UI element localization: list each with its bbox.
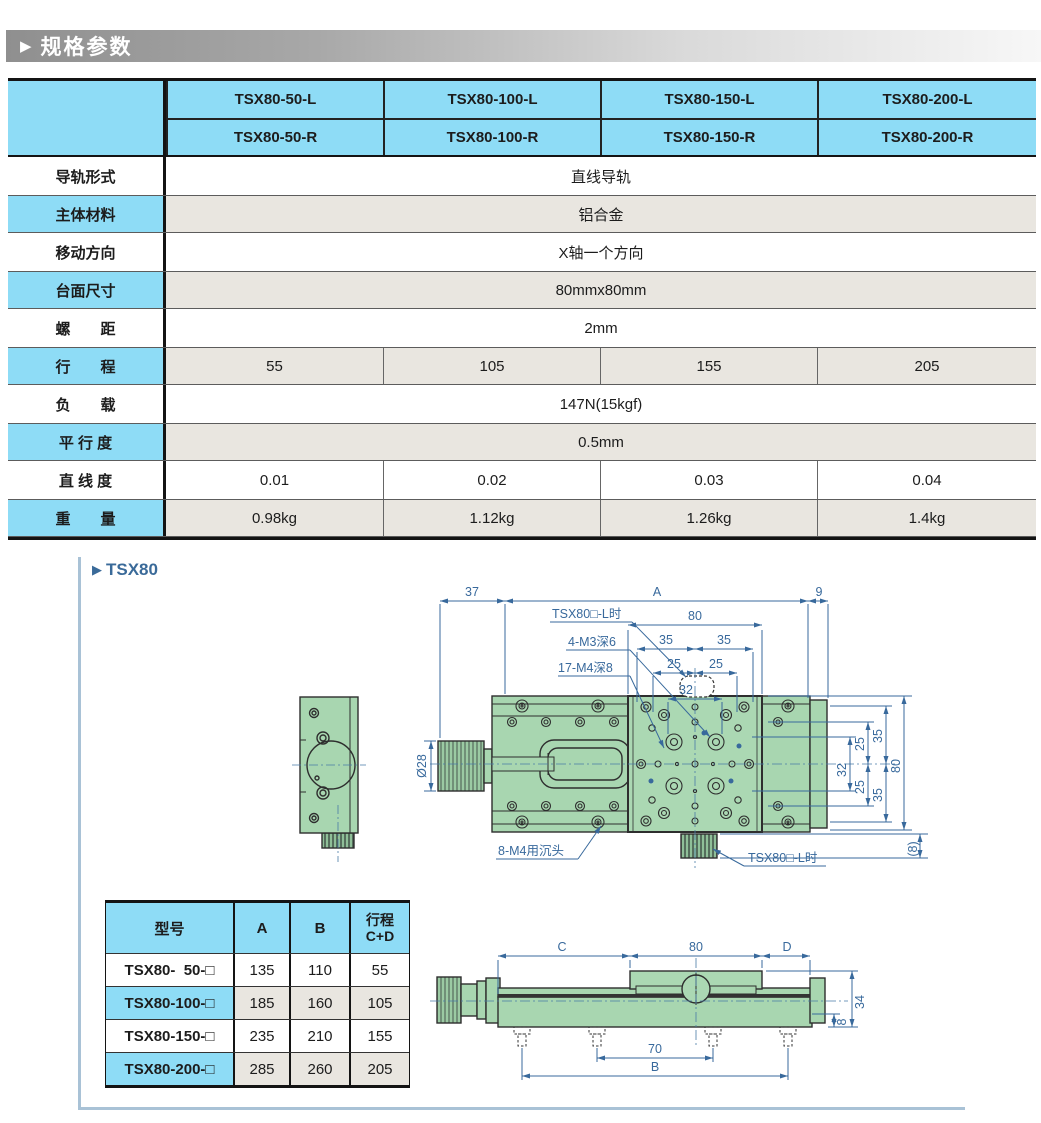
svg-text:17-M4深8: 17-M4深8 bbox=[558, 661, 613, 675]
spec-row: 主体材料 铝合金 bbox=[8, 195, 1036, 233]
row-label: 主体材料 bbox=[8, 196, 166, 232]
row-value: 0.01 bbox=[166, 461, 383, 499]
row-value: 1.12kg bbox=[383, 500, 600, 536]
svg-text:32: 32 bbox=[835, 763, 849, 777]
svg-text:32: 32 bbox=[679, 683, 693, 697]
spec-row: 重 量 0.98kg 1.12kg 1.26kg 1.4kg bbox=[8, 499, 1036, 537]
spec-row: 螺 距 2mm bbox=[8, 309, 1036, 347]
svg-text:25: 25 bbox=[667, 657, 681, 671]
model-header: TSX80-50-L bbox=[166, 81, 383, 118]
model-header: TSX80-150-L bbox=[600, 81, 817, 118]
row-label: 负 载 bbox=[8, 385, 166, 423]
row-label: 移动方向 bbox=[8, 233, 166, 271]
svg-text:35: 35 bbox=[659, 633, 673, 647]
banner-arrow-icon: ▶ bbox=[20, 39, 32, 54]
side-elevation-view: C 80 D 34 8 70 B bbox=[430, 940, 867, 1080]
banner-title: 规格参数 bbox=[41, 31, 133, 61]
svg-text:25: 25 bbox=[853, 780, 867, 794]
model-header: TSX80-200-L bbox=[817, 81, 1036, 118]
row-value: 1.26kg bbox=[600, 500, 817, 536]
svg-text:35: 35 bbox=[871, 788, 885, 802]
svg-text:8: 8 bbox=[835, 1018, 849, 1025]
col-header: A bbox=[233, 903, 289, 953]
row-value: 155 bbox=[600, 348, 817, 384]
row-label: 直 线 度 bbox=[8, 461, 166, 499]
svg-text:D: D bbox=[782, 940, 791, 954]
row-value: 105 bbox=[383, 348, 600, 384]
spec-table-header: TSX80-50-L TSX80-100-L TSX80-150-L TSX80… bbox=[8, 81, 1036, 157]
value-cell: 205 bbox=[349, 1053, 409, 1085]
model-table-row: TSX80- 50-□ 135 110 55 bbox=[106, 953, 409, 986]
col-header: 型号 bbox=[106, 903, 233, 953]
row-value: 0.04 bbox=[817, 461, 1036, 499]
value-cell: 160 bbox=[289, 987, 349, 1019]
svg-text:35: 35 bbox=[871, 729, 885, 743]
row-label: 导轨形式 bbox=[8, 157, 166, 195]
model-table-header: 型号 A B 行程 C+D bbox=[106, 903, 409, 953]
model-table-row: TSX80-150-□ 235 210 155 bbox=[106, 1019, 409, 1052]
row-label: 台面尺寸 bbox=[8, 272, 166, 308]
row-value: 55 bbox=[166, 348, 383, 384]
top-view: 37 A 9 80 35 35 25 25 32 TSX80□-L时 4-M3深… bbox=[415, 585, 928, 868]
svg-text:B: B bbox=[651, 1060, 659, 1074]
svg-text:80: 80 bbox=[688, 609, 702, 623]
svg-text:35: 35 bbox=[717, 633, 731, 647]
spec-row: 行 程 55 105 155 205 bbox=[8, 347, 1036, 385]
spec-row: 移动方向 X轴一个方向 bbox=[8, 233, 1036, 271]
svg-text:4-M3深6: 4-M3深6 bbox=[568, 635, 616, 649]
col-header: B bbox=[289, 903, 349, 953]
datasheet-page: ▶ 规格参数 TSX80-50-L TSX80-100-L TSX80-150-… bbox=[0, 0, 1041, 1123]
row-value: 147N(15kgf) bbox=[166, 385, 1036, 423]
spec-table: TSX80-50-L TSX80-100-L TSX80-150-L TSX80… bbox=[8, 78, 1036, 540]
value-cell: 155 bbox=[349, 1020, 409, 1052]
row-value: X轴一个方向 bbox=[166, 233, 1036, 271]
row-label: 行 程 bbox=[8, 348, 166, 384]
svg-text:C: C bbox=[557, 940, 566, 954]
row-value: 0.03 bbox=[600, 461, 817, 499]
value-cell: 110 bbox=[289, 954, 349, 986]
row-value: 0.98kg bbox=[166, 500, 383, 536]
svg-text:25: 25 bbox=[853, 737, 867, 751]
value-cell: 260 bbox=[289, 1053, 349, 1085]
col-header: 行程 C+D bbox=[349, 903, 409, 953]
svg-text:70: 70 bbox=[648, 1042, 662, 1056]
svg-text:80: 80 bbox=[689, 940, 703, 954]
model-cell: TSX80-150-□ bbox=[106, 1020, 233, 1052]
svg-text:37: 37 bbox=[465, 585, 479, 599]
svg-text:TSX80□-L时: TSX80□-L时 bbox=[748, 851, 818, 865]
svg-text:9: 9 bbox=[816, 585, 823, 599]
svg-text:Ø28: Ø28 bbox=[415, 754, 429, 778]
row-value: 铝合金 bbox=[166, 196, 1036, 232]
row-value: 0.02 bbox=[383, 461, 600, 499]
spec-row: 平 行 度 0.5mm bbox=[8, 423, 1036, 461]
end-view bbox=[292, 697, 366, 862]
row-value: 1.4kg bbox=[817, 500, 1036, 536]
spec-row: 负 载 147N(15kgf) bbox=[8, 385, 1036, 423]
row-value: 0.5mm bbox=[166, 424, 1036, 460]
svg-text:A: A bbox=[653, 585, 662, 599]
row-value: 205 bbox=[817, 348, 1036, 384]
row-label: 螺 距 bbox=[8, 309, 166, 347]
value-cell: 235 bbox=[233, 1020, 289, 1052]
model-header: TSX80-100-L bbox=[383, 81, 600, 118]
model-header: TSX80-100-R bbox=[383, 118, 600, 155]
svg-text:34: 34 bbox=[853, 995, 867, 1009]
section-banner: ▶ 规格参数 bbox=[6, 30, 1041, 62]
row-value: 2mm bbox=[166, 309, 1036, 347]
model-cell: TSX80-200-□ bbox=[106, 1053, 233, 1085]
row-value: 80mmx80mm bbox=[166, 272, 1036, 308]
model-cell: TSX80-100-□ bbox=[106, 987, 233, 1019]
value-cell: 210 bbox=[289, 1020, 349, 1052]
row-label: 重 量 bbox=[8, 500, 166, 536]
value-cell: 185 bbox=[233, 987, 289, 1019]
value-cell: 135 bbox=[233, 954, 289, 986]
model-header: TSX80-200-R bbox=[817, 118, 1036, 155]
value-cell: 105 bbox=[349, 987, 409, 1019]
model-header: TSX80-50-R bbox=[166, 118, 383, 155]
spec-corner-cell bbox=[8, 81, 166, 155]
model-dimension-table: 型号 A B 行程 C+D TSX80- 50-□ 135 110 55 TSX… bbox=[105, 900, 410, 1088]
model-cell: TSX80- 50-□ bbox=[106, 954, 233, 986]
row-value: 直线导轨 bbox=[166, 157, 1036, 195]
value-cell: 55 bbox=[349, 954, 409, 986]
value-cell: 285 bbox=[233, 1053, 289, 1085]
spec-row: 台面尺寸 80mmx80mm bbox=[8, 271, 1036, 309]
model-header: TSX80-150-R bbox=[600, 118, 817, 155]
svg-text:(8): (8) bbox=[906, 841, 920, 856]
model-table-row: TSX80-100-□ 185 160 105 bbox=[106, 986, 409, 1019]
svg-text:25: 25 bbox=[709, 657, 723, 671]
svg-text:80: 80 bbox=[889, 759, 903, 773]
spec-row: 导轨形式 直线导轨 bbox=[8, 157, 1036, 195]
row-label: 平 行 度 bbox=[8, 424, 166, 460]
svg-text:TSX80□-L时: TSX80□-L时 bbox=[552, 607, 622, 621]
spec-row: 直 线 度 0.01 0.02 0.03 0.04 bbox=[8, 461, 1036, 499]
svg-text:8-M4用沉头: 8-M4用沉头 bbox=[498, 844, 564, 858]
model-table-row: TSX80-200-□ 285 260 205 bbox=[106, 1052, 409, 1085]
